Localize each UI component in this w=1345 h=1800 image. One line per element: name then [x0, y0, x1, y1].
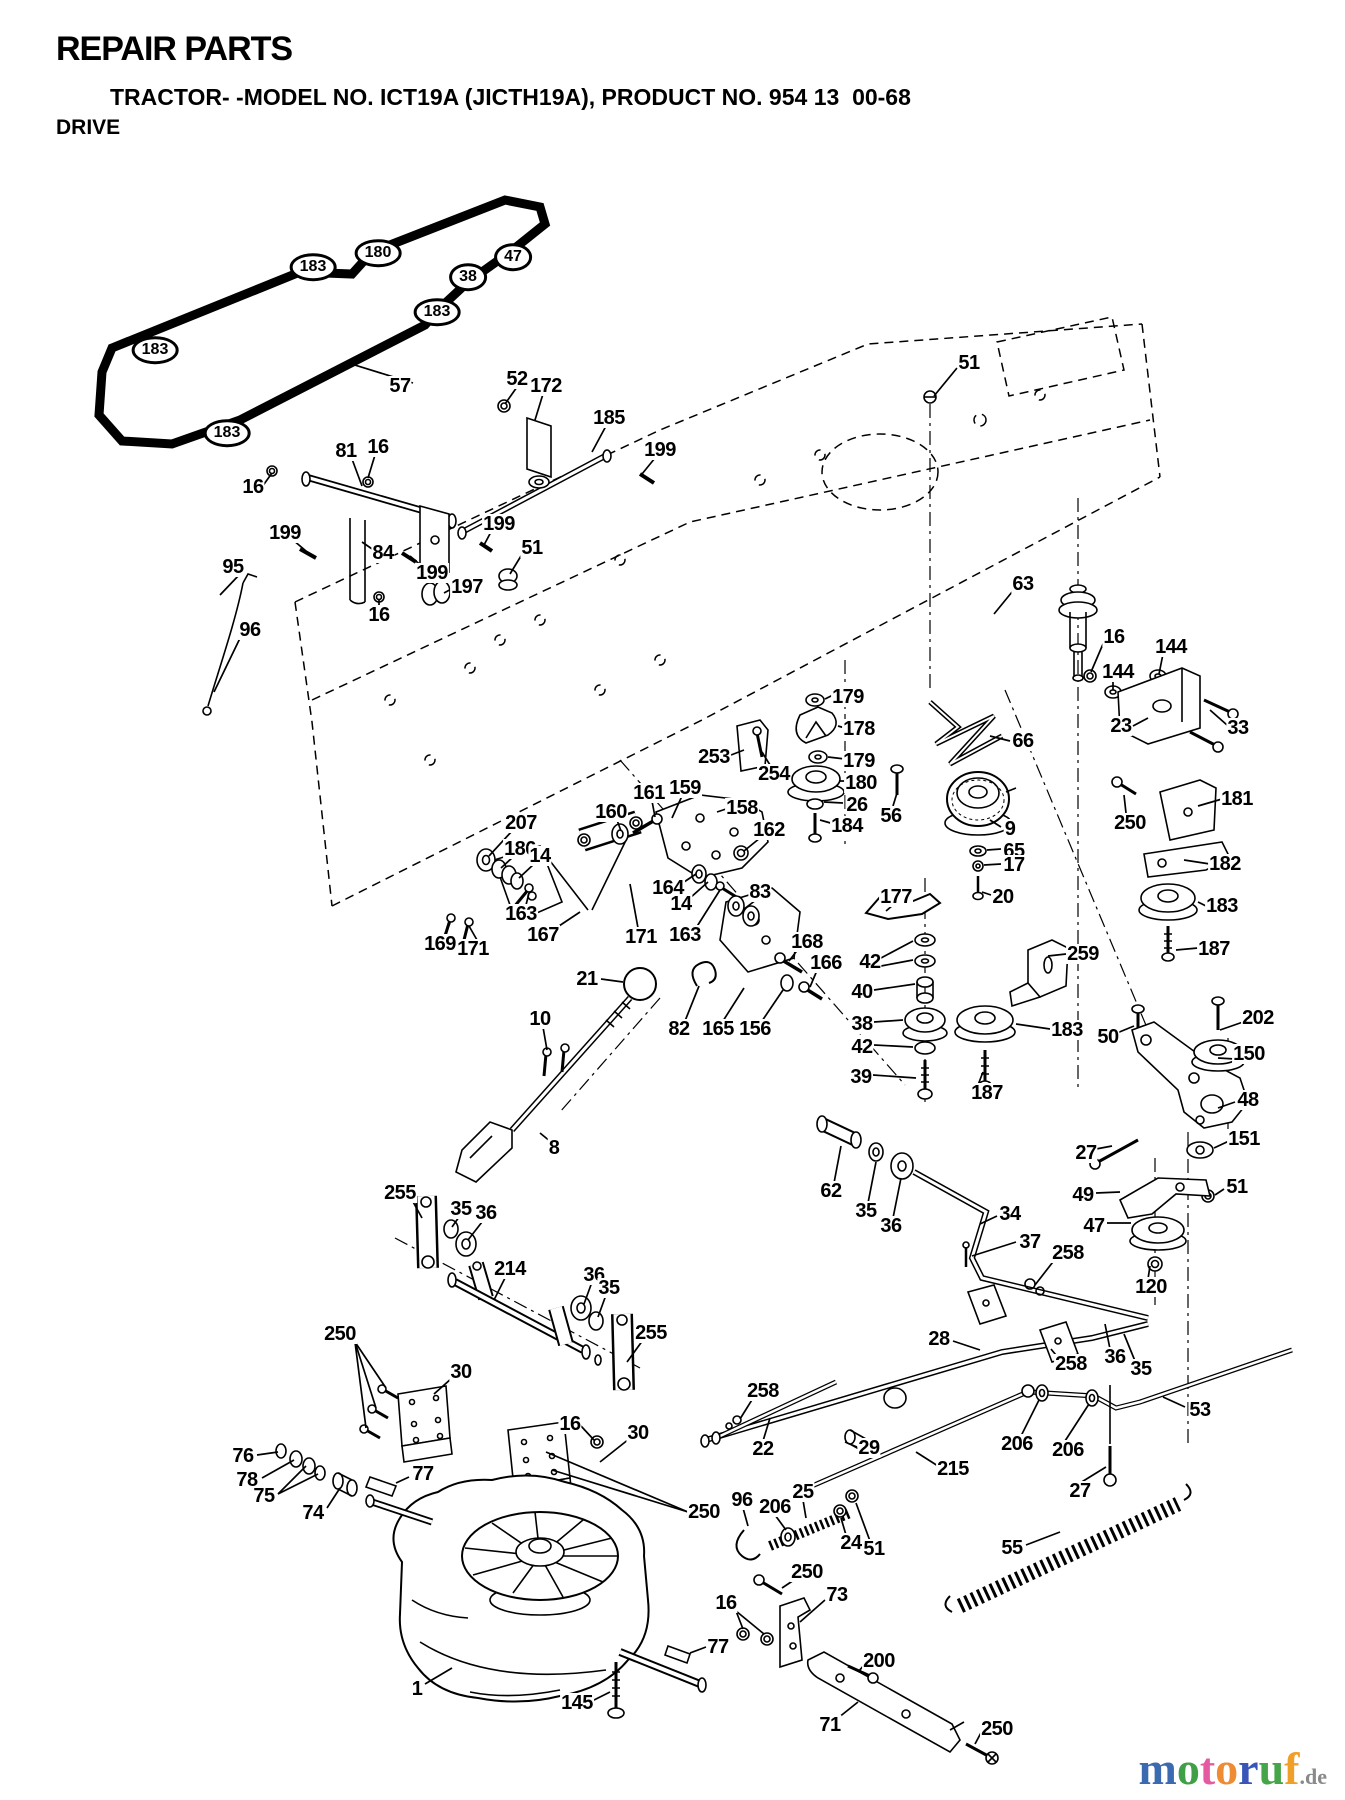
- diagram-canvas: 5752172185199811616199841991975119916959…: [0, 0, 1345, 1800]
- belt-callout-badge: 47: [494, 243, 532, 271]
- part-number-label: 172: [529, 376, 563, 396]
- part-number-label: 253: [697, 747, 731, 767]
- part-number-label: 171: [456, 939, 490, 959]
- belt-callout-badge: 183: [290, 253, 337, 281]
- part-number-label: 214: [493, 1259, 527, 1279]
- leader-line: [953, 1341, 980, 1350]
- part-number-label: 184: [830, 816, 864, 836]
- part-number-label: 66: [1011, 731, 1034, 751]
- part-number-label: 28: [927, 1329, 950, 1349]
- part-number-label: 34: [998, 1204, 1021, 1224]
- part-number-label: 33: [1226, 718, 1249, 738]
- part-number-label: 161: [632, 783, 666, 803]
- part-number-label: 77: [411, 1464, 434, 1484]
- part-number-label: 207: [504, 813, 538, 833]
- part-number-label: 250: [980, 1719, 1014, 1739]
- leader-line: [1021, 1400, 1039, 1436]
- part-number-label: 74: [301, 1503, 324, 1523]
- part-number-label: 180: [844, 773, 878, 793]
- leader-line: [592, 1692, 610, 1701]
- part-number-label: 56: [879, 806, 902, 826]
- part-number-label: 9: [1004, 819, 1017, 839]
- part-number-label: 42: [850, 1037, 873, 1057]
- part-number-label: 255: [634, 1323, 668, 1343]
- part-number-label: 167: [526, 925, 560, 945]
- part-number-label: 35: [449, 1199, 472, 1219]
- leader-line: [1210, 710, 1227, 725]
- part-number-label: 42: [858, 952, 881, 972]
- part-number-label: 250: [790, 1562, 824, 1582]
- leader-line: [396, 1477, 409, 1483]
- part-number-label: 258: [1051, 1243, 1085, 1263]
- part-number-label: 35: [854, 1201, 877, 1221]
- part-number-label: 163: [504, 904, 538, 924]
- part-number-label: 179: [842, 751, 876, 771]
- leader-line: [592, 426, 606, 452]
- part-number-label: 169: [423, 934, 457, 954]
- leader-line: [916, 1452, 938, 1466]
- part-number-label: 83: [748, 882, 771, 902]
- part-number-label: 158: [725, 798, 759, 818]
- drive-belt: [99, 200, 545, 444]
- part-number-label: 21: [575, 969, 598, 989]
- leader-line: [355, 1342, 376, 1408]
- part-number-label: 38: [850, 1014, 873, 1034]
- part-number-label: 183: [1205, 896, 1239, 916]
- part-number-label: 51: [520, 538, 543, 558]
- leader-line: [1016, 1024, 1050, 1029]
- part-number-label: 166: [809, 953, 843, 973]
- part-number-label: 162: [752, 820, 786, 840]
- leader-line: [1124, 795, 1126, 813]
- leader-line: [874, 1045, 913, 1047]
- part-number-label: 259: [1066, 944, 1100, 964]
- part-number-label: 75: [252, 1486, 275, 1506]
- part-number-label: 254: [757, 764, 791, 784]
- part-number-label: 20: [991, 887, 1014, 907]
- leader-line: [1176, 948, 1198, 950]
- leader-line: [1065, 1404, 1089, 1441]
- part-number-label: 57: [388, 376, 411, 396]
- leader-line: [873, 1075, 916, 1078]
- part-number-label: 16: [241, 477, 264, 497]
- part-number-label: 36: [474, 1203, 497, 1223]
- leader-line: [690, 882, 708, 898]
- leader-line: [874, 984, 915, 990]
- part-number-label: 62: [819, 1181, 842, 1201]
- parts-diagram-page: REPAIR PARTS TRACTOR- -MODEL NO. ICT19A …: [0, 0, 1345, 1800]
- watermark-letter: u: [1259, 1743, 1285, 1794]
- leader-line: [368, 455, 375, 478]
- part-number-label: 16: [558, 1414, 581, 1434]
- part-number-label: 24: [839, 1533, 862, 1553]
- belt-callout-badge: 183: [204, 419, 251, 447]
- part-number-label: 163: [668, 925, 702, 945]
- part-number-label: 17: [1002, 855, 1025, 875]
- leader-line: [685, 986, 699, 1021]
- leader-line: [327, 1488, 340, 1508]
- part-number-label: 178: [842, 719, 876, 739]
- part-number-label: 165: [701, 1019, 735, 1039]
- leader-line: [893, 1178, 901, 1218]
- belt-callout-badge: 183: [132, 336, 179, 364]
- belt-callout-badge: 38: [449, 263, 487, 291]
- leader-line: [1215, 1189, 1224, 1195]
- part-number-label: 47: [1082, 1216, 1105, 1236]
- part-number-label: 258: [1054, 1354, 1088, 1374]
- watermark-letter: m: [1139, 1743, 1177, 1794]
- watermark-letter: o: [1177, 1743, 1200, 1794]
- part-number-label: 199: [268, 523, 302, 543]
- leader-line: [881, 941, 913, 958]
- leader-line: [543, 1027, 547, 1050]
- leader-line: [630, 884, 638, 928]
- part-number-label: 30: [626, 1423, 649, 1443]
- part-number-label: 26: [845, 795, 868, 815]
- part-number-label: 16: [367, 605, 390, 625]
- leader-line: [1096, 1192, 1120, 1193]
- leader-line: [834, 1146, 841, 1183]
- part-number-label: 1: [411, 1679, 424, 1699]
- part-number-label: 14: [528, 846, 551, 866]
- part-number-label: 73: [825, 1585, 848, 1605]
- leader-line: [994, 592, 1012, 614]
- part-number-label: 16: [366, 437, 389, 457]
- part-number-label: 82: [667, 1019, 690, 1039]
- part-number-label: 63: [1011, 574, 1034, 594]
- leader-line: [352, 459, 362, 486]
- part-number-label: 145: [560, 1693, 594, 1713]
- part-number-label: 25: [791, 1482, 814, 1502]
- part-number-label: 255: [383, 1183, 417, 1203]
- part-number-label: 50: [1096, 1027, 1119, 1047]
- part-number-label: 27: [1074, 1143, 1097, 1163]
- belt-callout-badge: 180: [355, 239, 402, 267]
- part-number-label: 84: [371, 543, 394, 563]
- part-number-label: 30: [449, 1362, 472, 1382]
- part-number-label: 29: [857, 1438, 880, 1458]
- watermark-letter: f: [1284, 1743, 1299, 1794]
- part-number-label: 120: [1134, 1277, 1168, 1297]
- part-number-label: 16: [1102, 627, 1125, 647]
- leader-line: [601, 979, 623, 982]
- leader-line: [934, 368, 957, 396]
- leader-line: [1220, 1022, 1243, 1030]
- part-number-label: 39: [849, 1067, 872, 1087]
- part-number-label: 171: [624, 927, 658, 947]
- part-number-label: 181: [1220, 789, 1254, 809]
- part-number-label: 48: [1236, 1090, 1259, 1110]
- leader-line: [1163, 1397, 1185, 1407]
- part-number-label: 250: [687, 1502, 721, 1522]
- part-number-label: 22: [751, 1439, 774, 1459]
- part-number-label: 197: [450, 577, 484, 597]
- part-number-label: 215: [936, 1459, 970, 1479]
- leader-line: [762, 990, 783, 1021]
- part-number-label: 150: [1232, 1044, 1266, 1064]
- part-number-label: 81: [334, 441, 357, 461]
- part-number-label: 187: [1197, 939, 1231, 959]
- watermark-letter: r: [1238, 1743, 1258, 1794]
- part-number-label: 144: [1101, 662, 1135, 682]
- part-number-label: 199: [482, 514, 516, 534]
- leader-line: [257, 1452, 278, 1455]
- part-number-label: 76: [231, 1446, 254, 1466]
- part-number-label: 160: [594, 802, 628, 822]
- part-number-label: 35: [1129, 1359, 1152, 1379]
- part-number-label: 199: [643, 440, 677, 460]
- part-number-label: 10: [528, 1009, 551, 1029]
- part-number-label: 95: [221, 557, 244, 577]
- part-number-label: 183: [1050, 1020, 1084, 1040]
- leader-line: [824, 802, 843, 803]
- leader-line: [690, 1647, 706, 1653]
- part-number-label: 250: [323, 1324, 357, 1344]
- leader-line: [868, 1162, 876, 1203]
- part-number-label: 156: [738, 1019, 772, 1039]
- leader-line: [987, 849, 1001, 850]
- leader-line: [262, 1460, 294, 1478]
- leader-line: [984, 864, 1001, 865]
- part-number-label: 55: [1000, 1538, 1023, 1558]
- part-number-label: 14: [669, 894, 692, 914]
- leader-line: [535, 394, 543, 420]
- part-number-label: 23: [1109, 716, 1132, 736]
- leader-line: [1026, 1532, 1060, 1545]
- part-number-label: 40: [850, 982, 873, 1002]
- part-number-label: 151: [1227, 1129, 1261, 1149]
- leader-line: [1096, 1146, 1112, 1149]
- part-number-label: 8: [548, 1138, 561, 1158]
- part-number-label: 177: [879, 887, 913, 907]
- leader-line: [874, 1020, 903, 1022]
- part-number-label: 206: [758, 1497, 792, 1517]
- leader-line: [696, 890, 720, 928]
- leader-line: [723, 988, 744, 1021]
- part-number-label: 53: [1188, 1400, 1211, 1420]
- part-number-label: 51: [1225, 1177, 1248, 1197]
- part-number-label: 159: [668, 778, 702, 798]
- leader-line: [581, 1426, 594, 1440]
- part-number-label: 199: [415, 563, 449, 583]
- part-number-label: 35: [597, 1278, 620, 1298]
- belt-callout-badge: 183: [414, 298, 461, 326]
- watermark-logo: motoruf.de: [1139, 1746, 1328, 1792]
- part-number-label: 144: [1154, 637, 1188, 657]
- part-number-label: 258: [746, 1381, 780, 1401]
- leader-line: [600, 1439, 629, 1462]
- part-number-label: 71: [818, 1715, 841, 1735]
- part-number-label: 185: [592, 408, 626, 428]
- part-number-label: 51: [862, 1539, 885, 1559]
- watermark-letter: o: [1215, 1743, 1238, 1794]
- part-number-label: 52: [505, 369, 528, 389]
- part-number-label: 49: [1071, 1185, 1094, 1205]
- part-number-label: 179: [831, 687, 865, 707]
- part-number-label: 200: [862, 1651, 896, 1671]
- center-lines: [395, 404, 1228, 1448]
- leader-line: [278, 1474, 318, 1494]
- part-number-label: 16: [714, 1593, 737, 1613]
- part-number-label: 36: [1103, 1347, 1126, 1367]
- part-number-label: 187: [970, 1083, 1004, 1103]
- part-number-label: 27: [1068, 1481, 1091, 1501]
- watermark-suffix: .de: [1300, 1764, 1328, 1789]
- part-number-label: 37: [1018, 1232, 1041, 1252]
- part-number-label: 202: [1241, 1008, 1275, 1028]
- part-number-label: 51: [957, 353, 980, 373]
- part-number-label: 36: [879, 1216, 902, 1236]
- part-number-label: 96: [238, 620, 261, 640]
- leader-line: [881, 960, 913, 966]
- leader-line: [278, 1466, 306, 1494]
- part-number-label: 250: [1113, 813, 1147, 833]
- part-number-label: 206: [1051, 1440, 1085, 1460]
- leader-lines: [214, 362, 1243, 1744]
- watermark-letter: t: [1200, 1743, 1215, 1794]
- part-number-label: 182: [1208, 854, 1242, 874]
- part-number-label: 168: [790, 932, 824, 952]
- part-number-label: 96: [730, 1490, 753, 1510]
- part-number-label: 77: [706, 1637, 729, 1657]
- part-number-label: 206: [1000, 1434, 1034, 1454]
